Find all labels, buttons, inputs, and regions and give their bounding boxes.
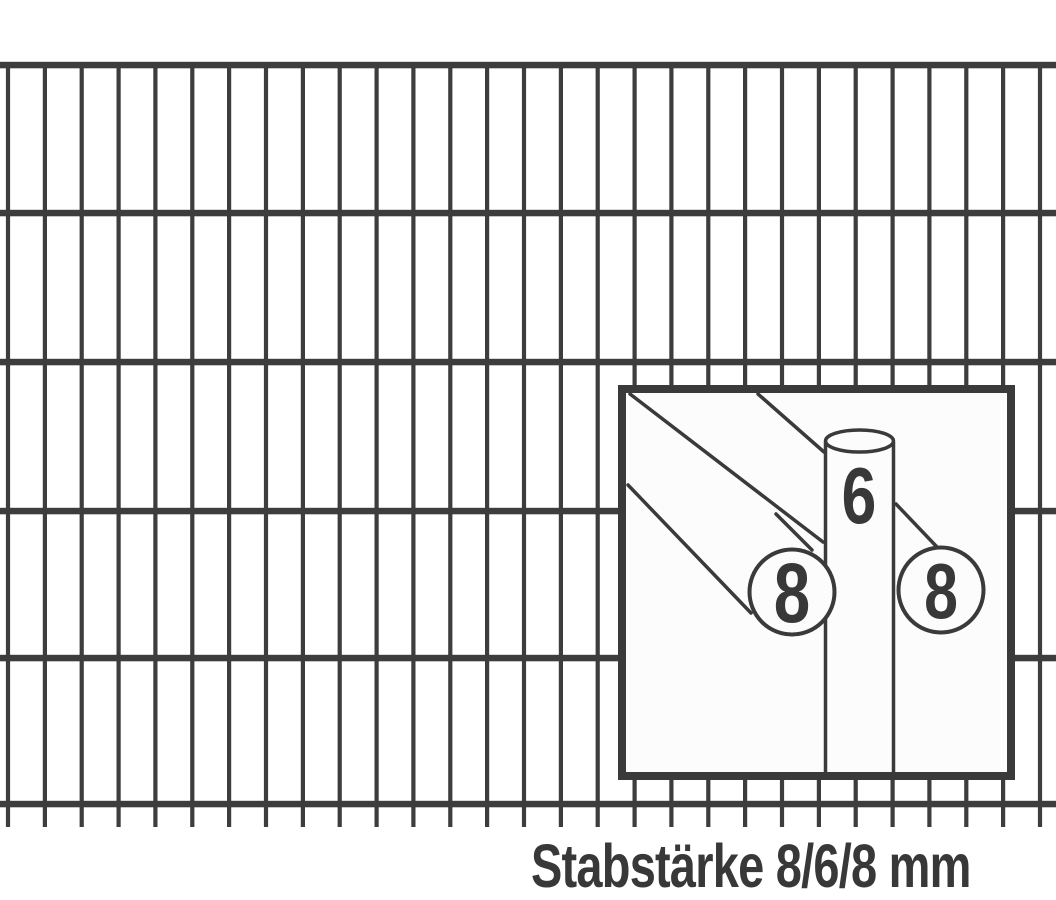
- fence-horizontal-rod: [0, 801, 1056, 808]
- rear-rod-thickness-label: 8: [924, 548, 958, 635]
- fence-vertical-rod: [153, 62, 157, 827]
- fence-vertical-rod: [190, 62, 194, 827]
- fence-horizontal-rod: [0, 210, 1056, 217]
- fence-horizontal-rod: [0, 359, 1056, 366]
- fence-vertical-rod: [80, 62, 84, 827]
- detail-inset: 6 8 8: [618, 385, 1015, 780]
- front-rod-thickness-label: 8: [774, 546, 810, 640]
- fence-vertical-rod: [301, 62, 305, 827]
- fence-vertical-rod: [485, 62, 489, 827]
- fence-vertical-rod: [448, 62, 452, 827]
- fence-vertical-rod: [411, 62, 415, 827]
- fence-vertical-rod: [43, 62, 47, 827]
- fence-vertical-rod: [227, 62, 231, 827]
- fence-vertical-rod: [117, 62, 121, 827]
- caption-text: Stabstärke 8/6/8 mm: [531, 831, 971, 900]
- vertical-rod-thickness-label: 6: [842, 452, 877, 541]
- fence-panel-drawing: 6 8 8: [0, 0, 1056, 900]
- fence-vertical-rod: [596, 62, 600, 827]
- fence-vertical-rod: [559, 62, 563, 827]
- fence-vertical-rod: [338, 62, 342, 827]
- vertical-rod-top-ellipse: [826, 430, 894, 452]
- fence-vertical-rod: [264, 62, 268, 827]
- fence-horizontal-rod: [0, 62, 1056, 69]
- fence-vertical-rod: [1038, 62, 1042, 827]
- fence-vertical-rod: [6, 62, 10, 827]
- fence-panel-illustration: 6 8 8 Stabstärke 8/6/8 mm: [0, 0, 1056, 900]
- fence-vertical-rod: [522, 62, 526, 827]
- fence-vertical-rod: [375, 62, 379, 827]
